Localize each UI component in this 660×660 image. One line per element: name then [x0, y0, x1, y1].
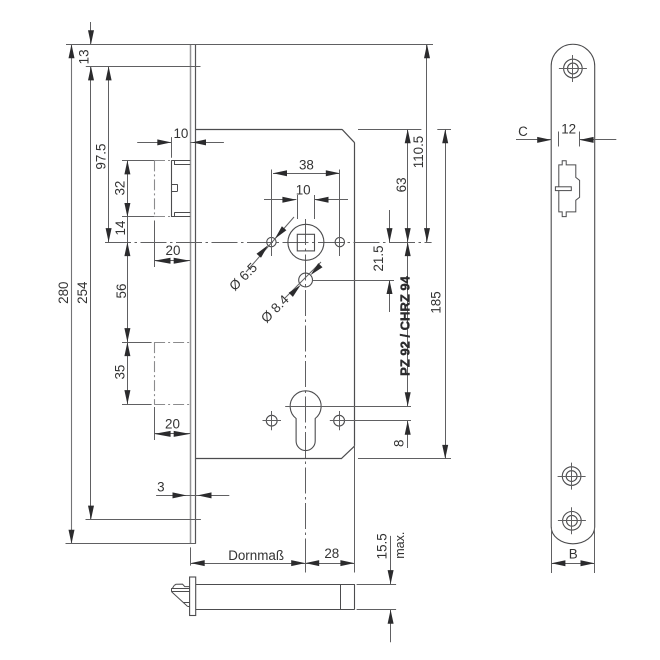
svg-text:56: 56 — [114, 284, 129, 299]
svg-text:63: 63 — [394, 177, 409, 192]
svg-text:110.5: 110.5 — [411, 136, 426, 169]
svg-text:21.5: 21.5 — [371, 245, 386, 271]
svg-text:38: 38 — [299, 158, 314, 173]
svg-text:20: 20 — [165, 417, 180, 432]
svg-text:32: 32 — [113, 181, 128, 196]
svg-text:12: 12 — [561, 122, 576, 137]
svg-text:28: 28 — [324, 546, 339, 561]
svg-text:20: 20 — [166, 243, 181, 258]
svg-text:13: 13 — [76, 49, 91, 64]
svg-text:254: 254 — [75, 281, 90, 304]
svg-text:C: C — [518, 124, 528, 139]
svg-text:8: 8 — [392, 440, 407, 447]
svg-text:10: 10 — [173, 126, 188, 141]
svg-text:Dornmaß: Dornmaß — [228, 548, 284, 563]
svg-text:max.: max. — [393, 532, 407, 559]
svg-text:14: 14 — [113, 220, 128, 235]
svg-text:10: 10 — [296, 182, 311, 197]
svg-text:B: B — [569, 546, 578, 561]
svg-text:185: 185 — [428, 291, 443, 313]
svg-text:97.5: 97.5 — [94, 144, 109, 170]
svg-text:15.5: 15.5 — [375, 533, 390, 559]
svg-text:3: 3 — [157, 480, 164, 495]
svg-text:PZ 92 / CHRZ 94: PZ 92 / CHRZ 94 — [397, 275, 412, 375]
svg-text:280: 280 — [56, 282, 71, 304]
svg-text:35: 35 — [113, 365, 128, 380]
